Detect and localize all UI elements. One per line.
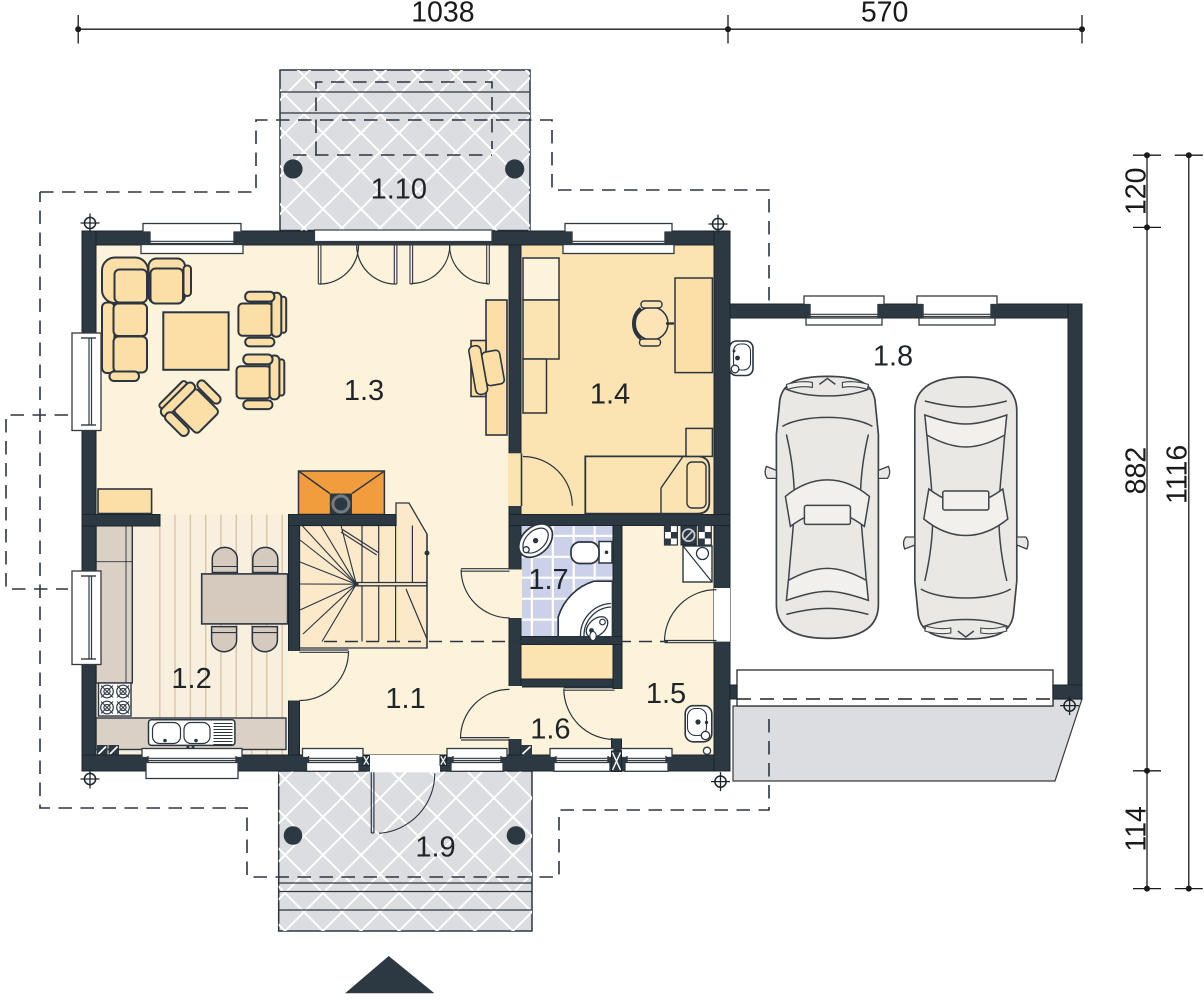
svg-text:1.1: 1.1 (385, 683, 425, 715)
svg-text:1.6: 1.6 (530, 714, 570, 746)
svg-text:882: 882 (1121, 447, 1153, 495)
svg-text:1.7: 1.7 (528, 564, 568, 596)
svg-text:1.9: 1.9 (415, 832, 455, 864)
svg-text:1038: 1038 (411, 0, 474, 29)
svg-text:120: 120 (1121, 168, 1153, 216)
svg-text:1.10: 1.10 (371, 174, 427, 206)
svg-text:1.8: 1.8 (873, 341, 913, 373)
svg-text:1116: 1116 (1162, 445, 1194, 504)
svg-text:1.3: 1.3 (344, 375, 384, 407)
svg-text:1.5: 1.5 (646, 678, 686, 710)
svg-text:1.2: 1.2 (171, 663, 211, 695)
svg-text:570: 570 (861, 0, 909, 29)
svg-text:1.4: 1.4 (590, 379, 630, 411)
svg-text:114: 114 (1121, 806, 1153, 852)
